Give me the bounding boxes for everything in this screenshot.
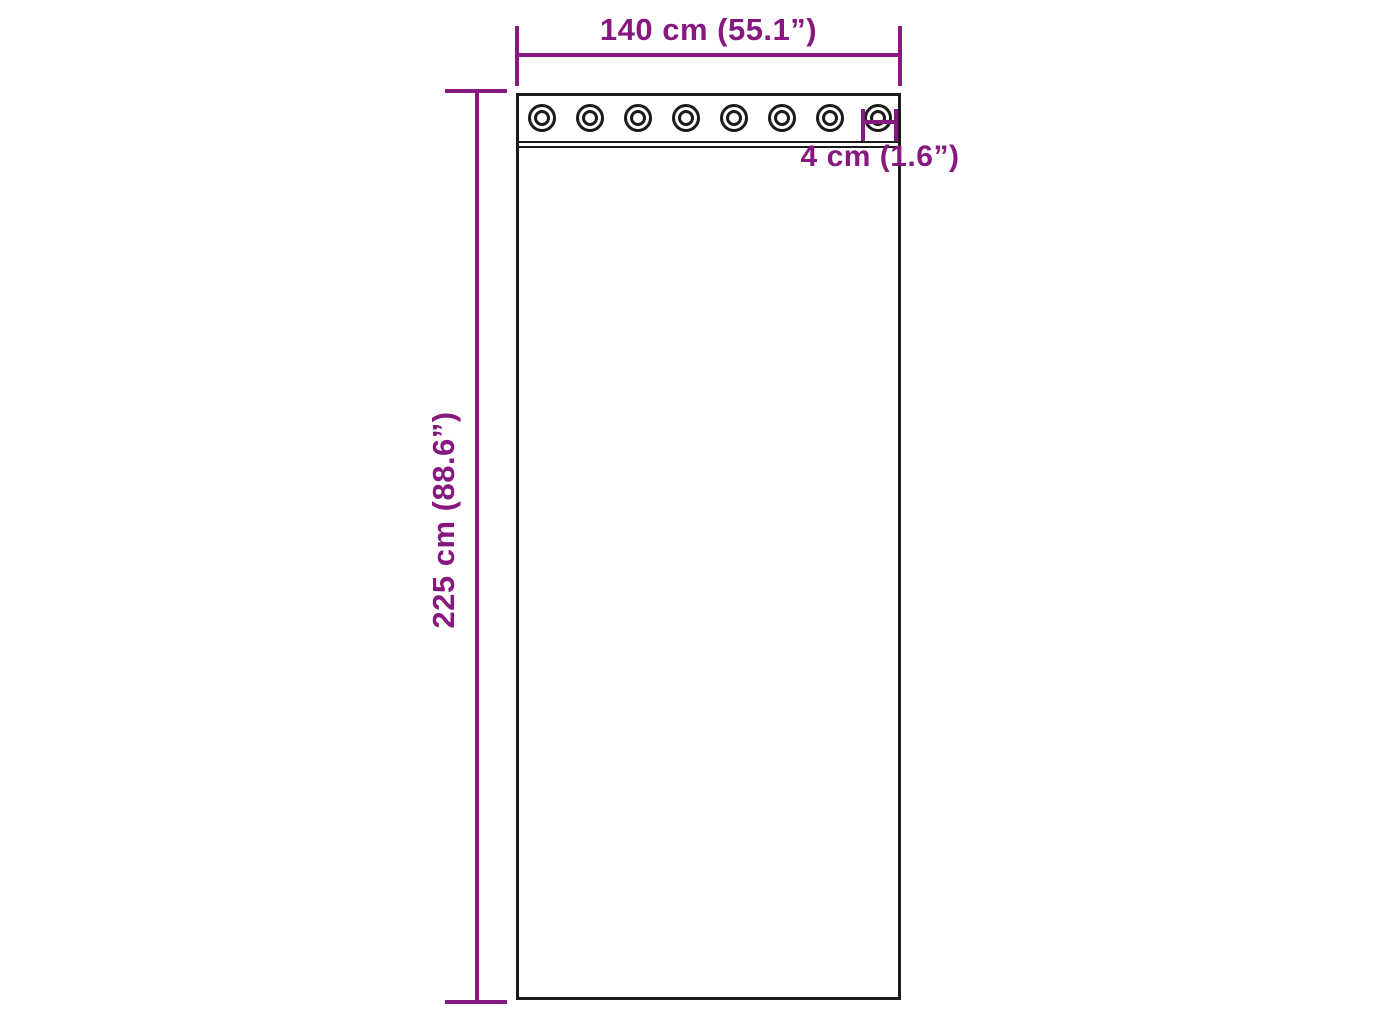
grommet-spacing-tick-left bbox=[861, 109, 865, 141]
product-dimension-diagram: 140 cm (55.1”) 225 cm (88.6”) 4 cm (1.6”… bbox=[0, 0, 1390, 1024]
height-dimension-end-cap-bottom bbox=[445, 1000, 507, 1004]
height-dimension-end-cap-top bbox=[445, 89, 507, 93]
grommet-icon bbox=[816, 104, 844, 132]
grommet-icon bbox=[624, 104, 652, 132]
grommet-icon bbox=[720, 104, 748, 132]
width-dimension-label: 140 cm (55.1”) bbox=[515, 12, 902, 48]
grommet-icon bbox=[768, 104, 796, 132]
grommet-icon bbox=[576, 104, 604, 132]
height-dimension-line bbox=[475, 89, 479, 1004]
grommet-spacing-tick-right bbox=[894, 109, 898, 141]
grommet-spacing-label: 4 cm (1.6”) bbox=[790, 140, 970, 174]
curtain-panel-outline bbox=[516, 93, 901, 1000]
height-dimension-label: 225 cm (88.6”) bbox=[426, 411, 462, 628]
width-dimension-line bbox=[517, 53, 900, 57]
grommet-icon bbox=[864, 104, 892, 132]
grommet-icon bbox=[672, 104, 700, 132]
grommet-icon bbox=[528, 104, 556, 132]
grommet-spacing-dimension-line bbox=[864, 120, 897, 124]
